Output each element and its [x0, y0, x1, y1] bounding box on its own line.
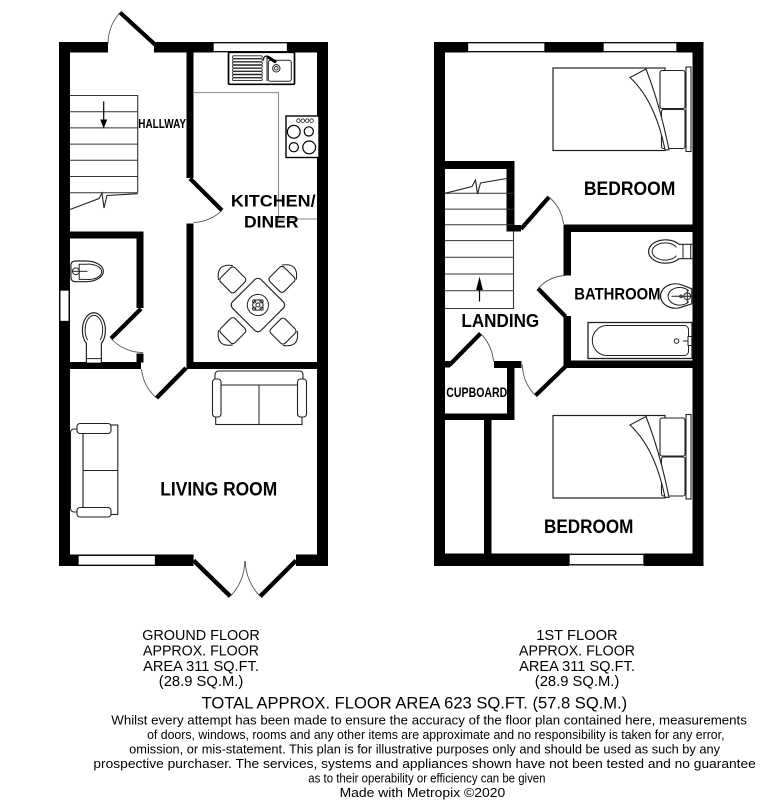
svg-text:BATHROOM: BATHROOM	[574, 286, 660, 304]
svg-text:as to their operability or eff: as to their operability or efficiency ca…	[308, 771, 545, 785]
svg-text:Made with Metropix ©2020: Made with Metropix ©2020	[340, 786, 506, 800]
svg-text:(28.9 SQ.M.): (28.9 SQ.M.)	[159, 673, 244, 690]
svg-text:prospective purchaser. The ser: prospective purchaser. The services, sys…	[93, 757, 755, 771]
svg-text:KITCHEN/: KITCHEN/	[231, 192, 316, 210]
svg-text:LANDING: LANDING	[461, 311, 539, 331]
svg-text:(28.9 SQ.M.): (28.9 SQ.M.)	[535, 673, 620, 690]
svg-text:DINER: DINER	[244, 213, 299, 231]
svg-text:CUPBOARD: CUPBOARD	[446, 384, 507, 400]
svg-text:LIVING ROOM: LIVING ROOM	[160, 479, 277, 501]
svg-text:HALLWAY: HALLWAY	[138, 116, 186, 131]
svg-text:TOTAL APPROX. FLOOR AREA 623 S: TOTAL APPROX. FLOOR AREA 623 SQ.FT. (57.…	[202, 695, 628, 713]
svg-text:Whilst every attempt has been: Whilst every attempt has been made to en…	[111, 714, 747, 728]
svg-text:of doors, windows, rooms and a: of doors, windows, rooms and any other i…	[147, 728, 724, 742]
svg-text:BEDROOM: BEDROOM	[584, 178, 675, 200]
svg-text:BEDROOM: BEDROOM	[544, 516, 633, 538]
svg-text:omission, or mis-statement. Th: omission, or mis-statement. This plan is…	[129, 743, 721, 757]
